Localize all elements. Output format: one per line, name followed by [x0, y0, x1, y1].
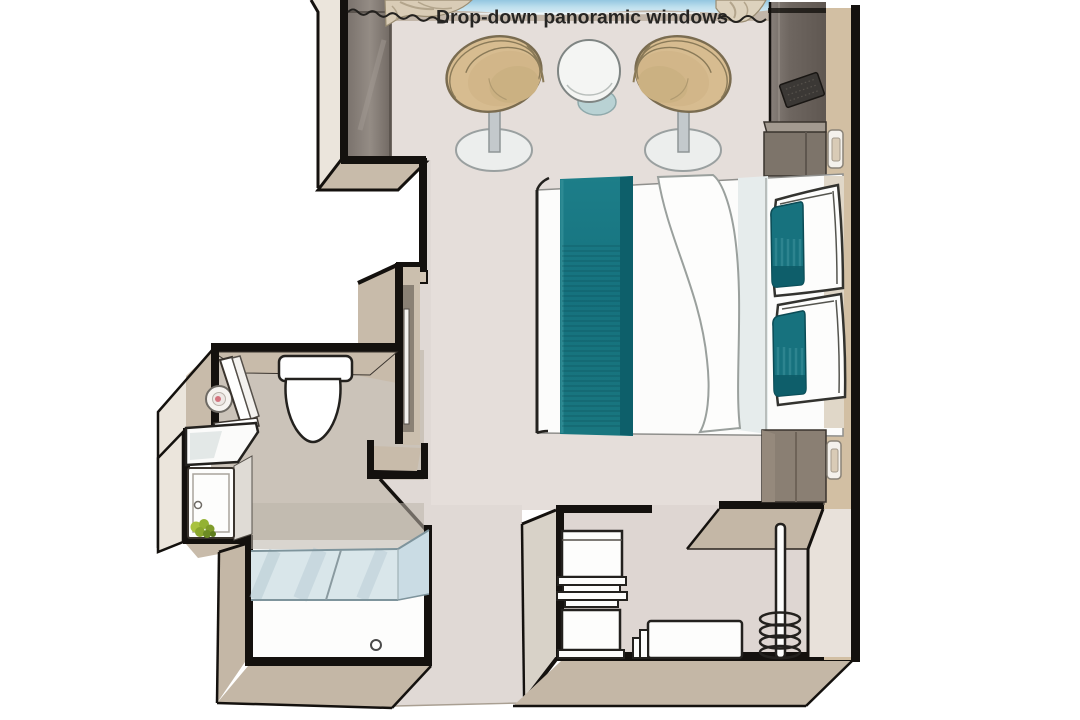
- svg-text:Drop-down panoramic windows: Drop-down panoramic windows: [436, 8, 728, 29]
